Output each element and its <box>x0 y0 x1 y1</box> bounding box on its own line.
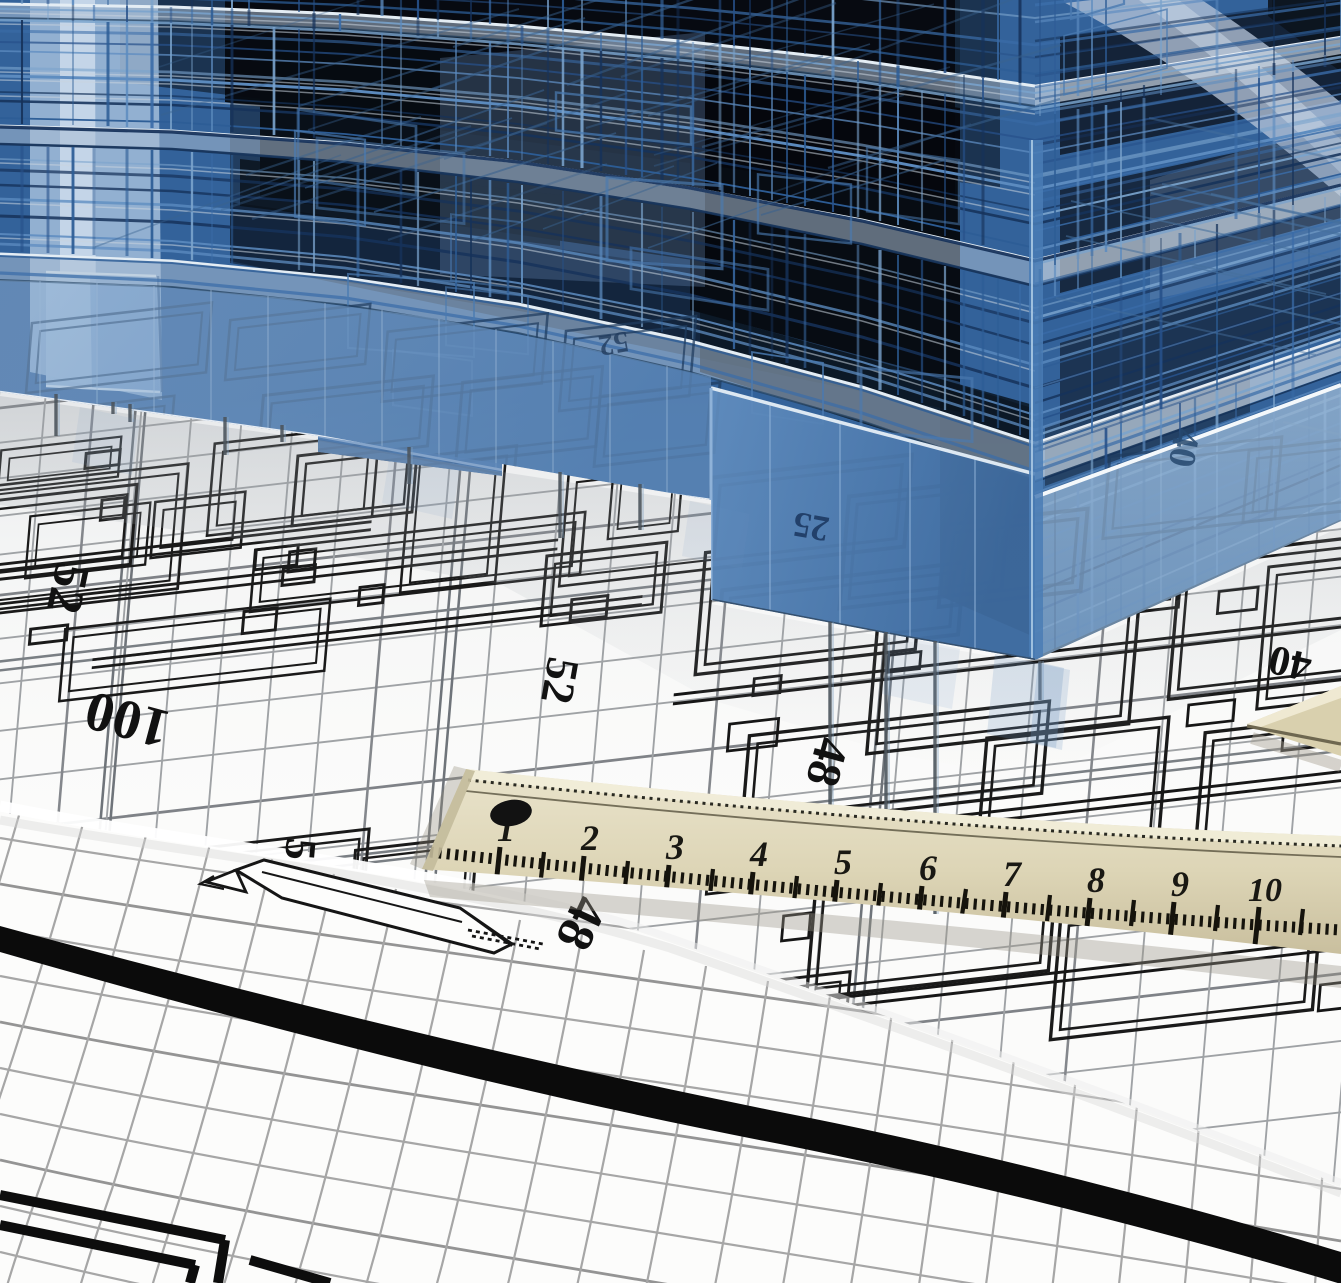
svg-text:8: 8 <box>1087 860 1105 900</box>
svg-text:25: 25 <box>790 504 832 550</box>
svg-text:40: 40 <box>1160 426 1208 471</box>
svg-text:6: 6 <box>919 848 937 888</box>
svg-text:10: 10 <box>1248 872 1282 909</box>
svg-text:4: 4 <box>749 834 768 874</box>
svg-text:52: 52 <box>531 654 589 708</box>
svg-text:3: 3 <box>665 827 684 867</box>
svg-text:52: 52 <box>596 325 631 363</box>
svg-text:5: 5 <box>275 836 326 862</box>
svg-text:7: 7 <box>1003 854 1023 894</box>
svg-text:9: 9 <box>1171 864 1189 904</box>
svg-text:2: 2 <box>580 818 599 858</box>
svg-text:5: 5 <box>834 842 852 882</box>
